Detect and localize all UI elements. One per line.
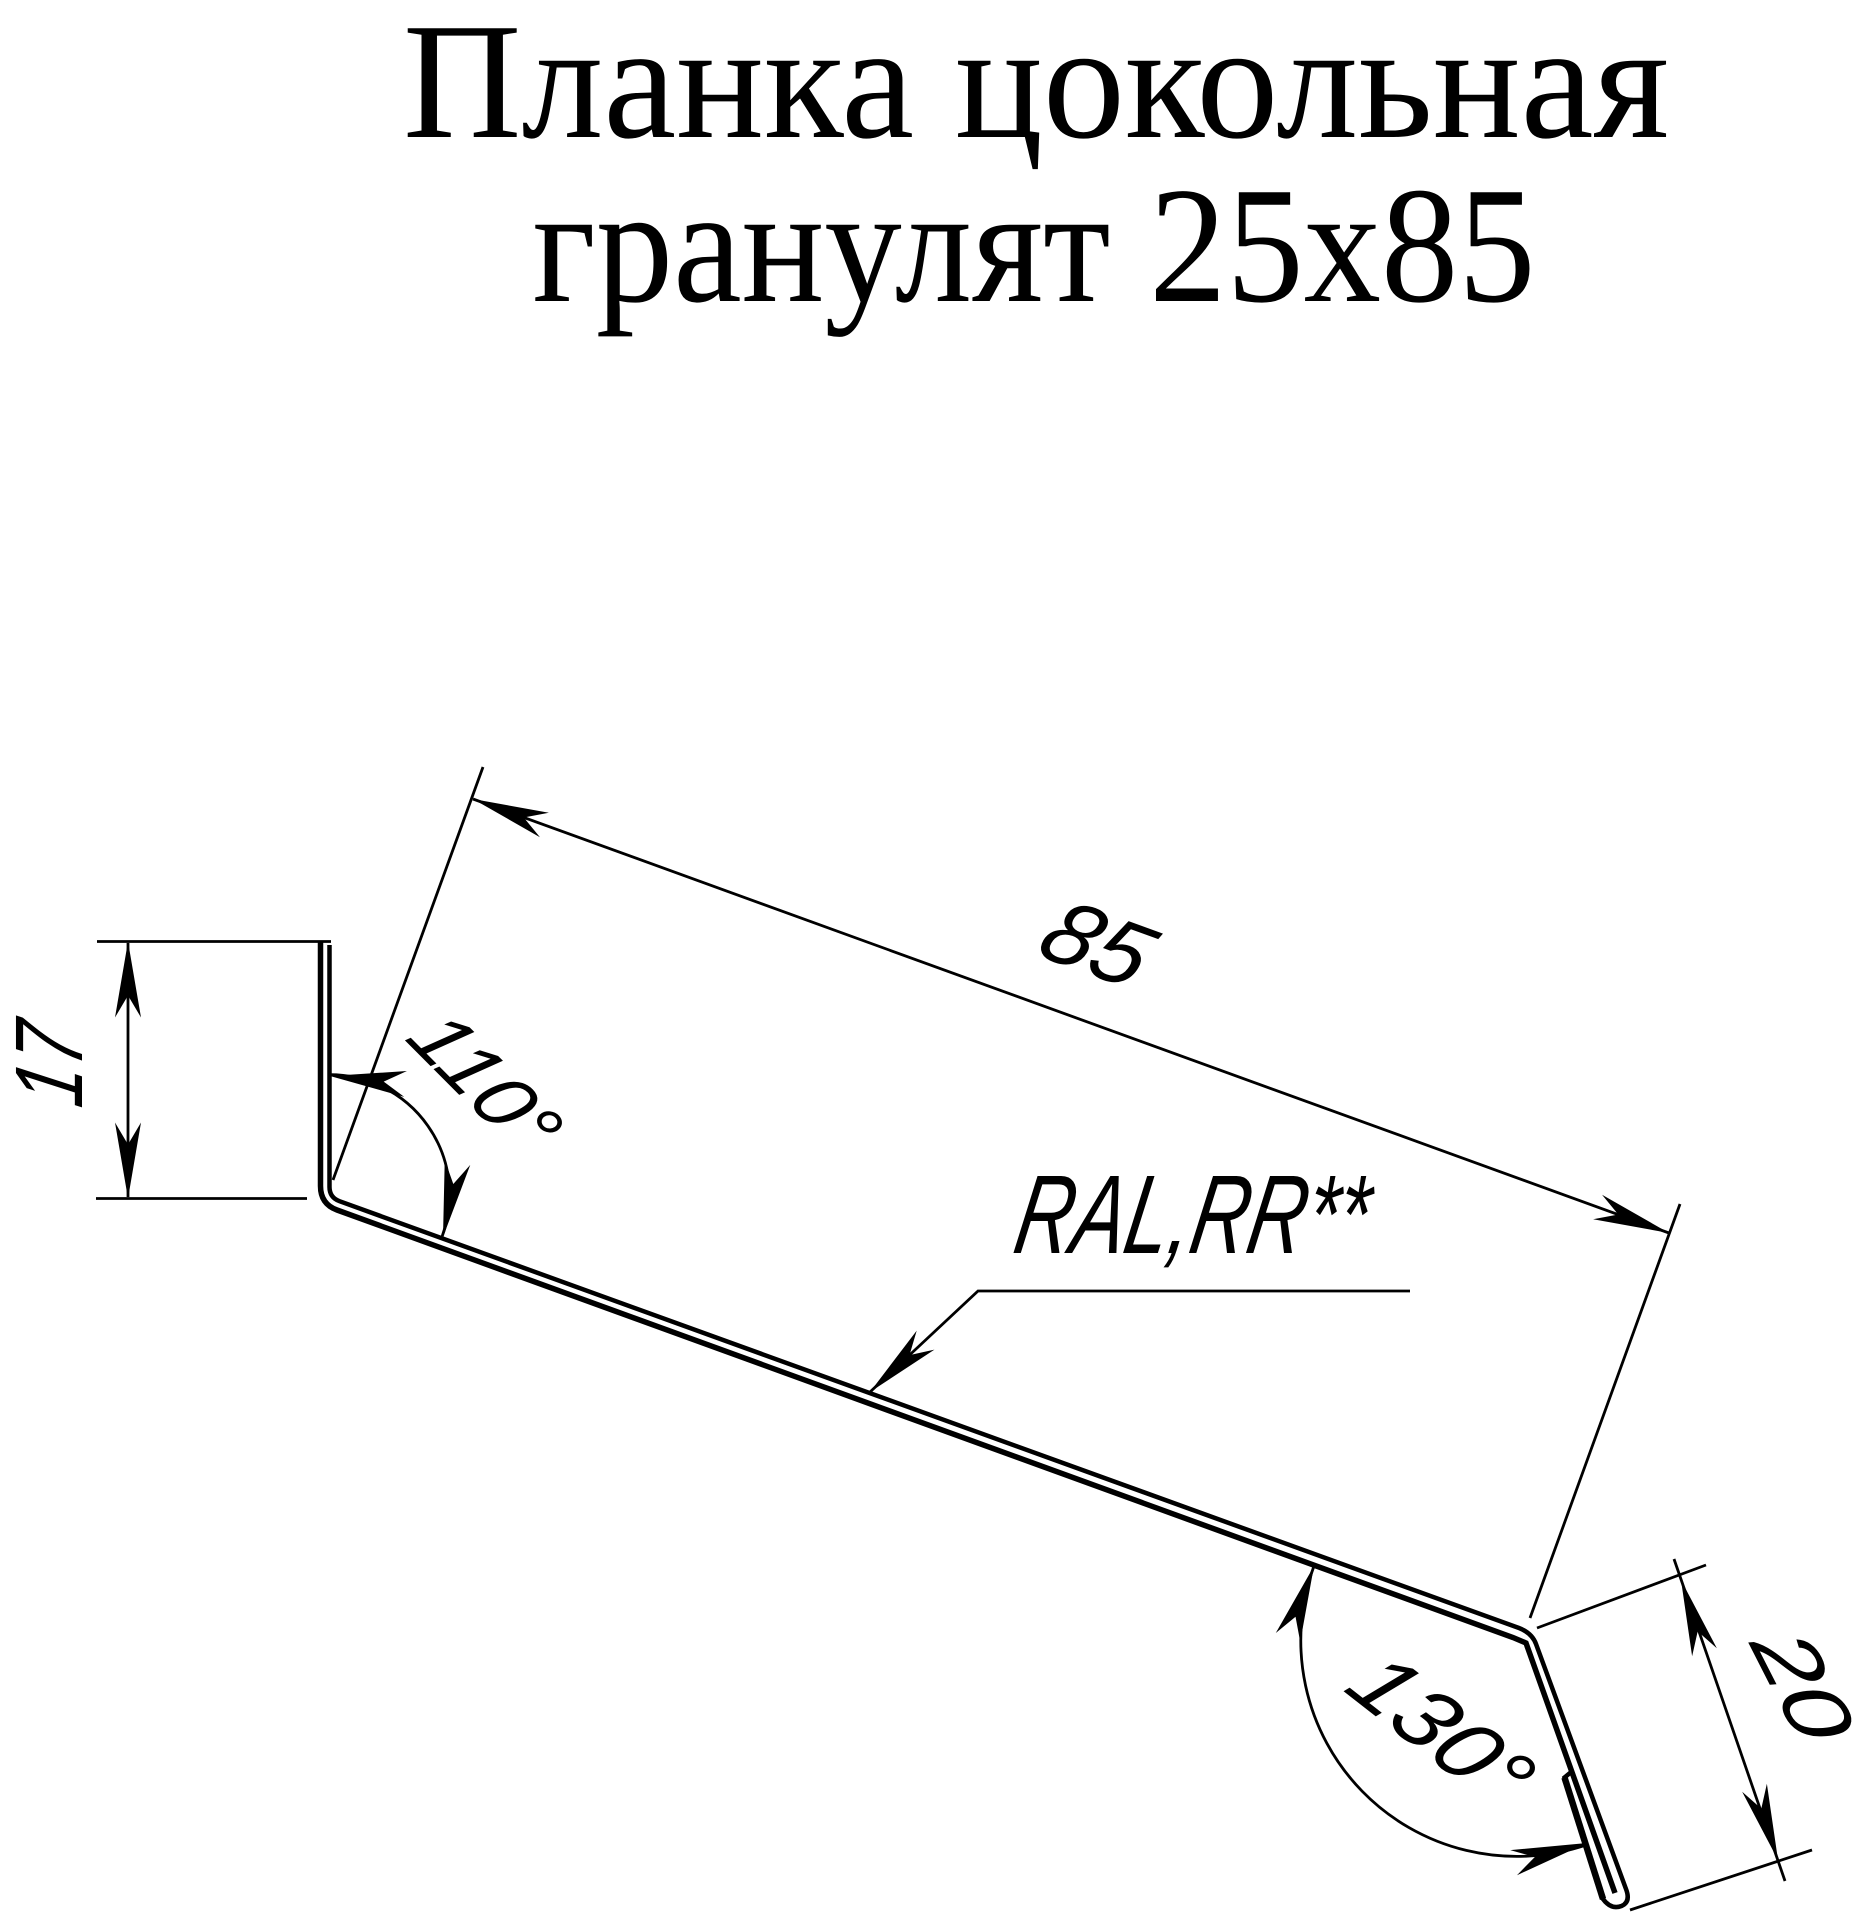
svg-text:RAL,RR**: RAL,RR** xyxy=(1007,1152,1382,1277)
svg-text:Планка цокольная: Планка цокольная xyxy=(403,0,1669,173)
svg-text:гранулят 25х85: гранулят 25х85 xyxy=(533,153,1536,337)
